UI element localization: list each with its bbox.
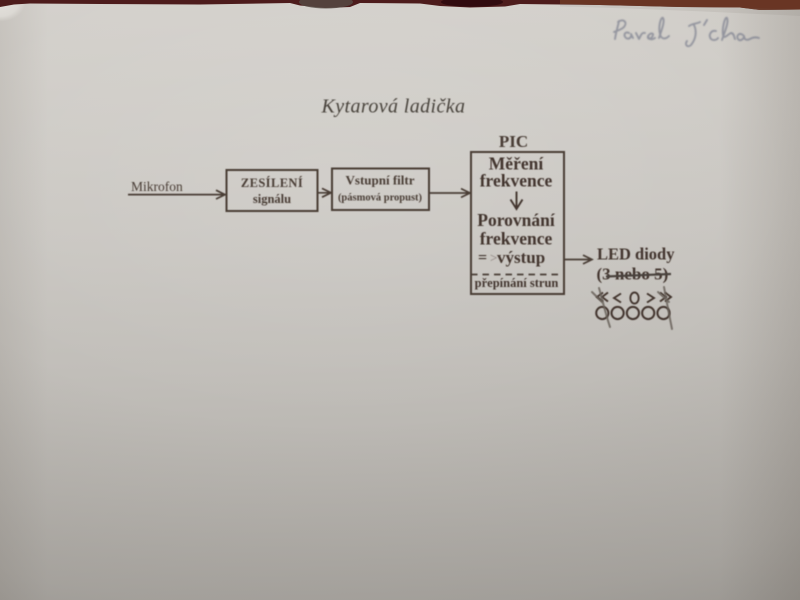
svg-text:Vstupní filtr: Vstupní filtr <box>346 173 415 188</box>
svg-text:Mikrofon: Mikrofon <box>131 179 183 194</box>
svg-text:=: = <box>478 250 487 267</box>
svg-text:Kytarová ladička: Kytarová ladička <box>321 96 466 118</box>
svg-text:ZESÍLENÍ: ZESÍLENÍ <box>241 176 303 190</box>
svg-text:Porovnání: Porovnání <box>477 210 556 230</box>
svg-text:(pásmová propust): (pásmová propust) <box>338 193 423 204</box>
svg-text:frekvence: frekvence <box>480 171 553 191</box>
svg-text:LED diody: LED diody <box>597 245 675 264</box>
svg-text:signálu: signálu <box>253 192 291 206</box>
svg-text:výstup: výstup <box>497 248 545 267</box>
svg-text:frekvence: frekvence <box>480 229 553 249</box>
svg-text:přepínání strun: přepínání strun <box>475 276 559 290</box>
svg-text:PIC: PIC <box>499 132 528 151</box>
